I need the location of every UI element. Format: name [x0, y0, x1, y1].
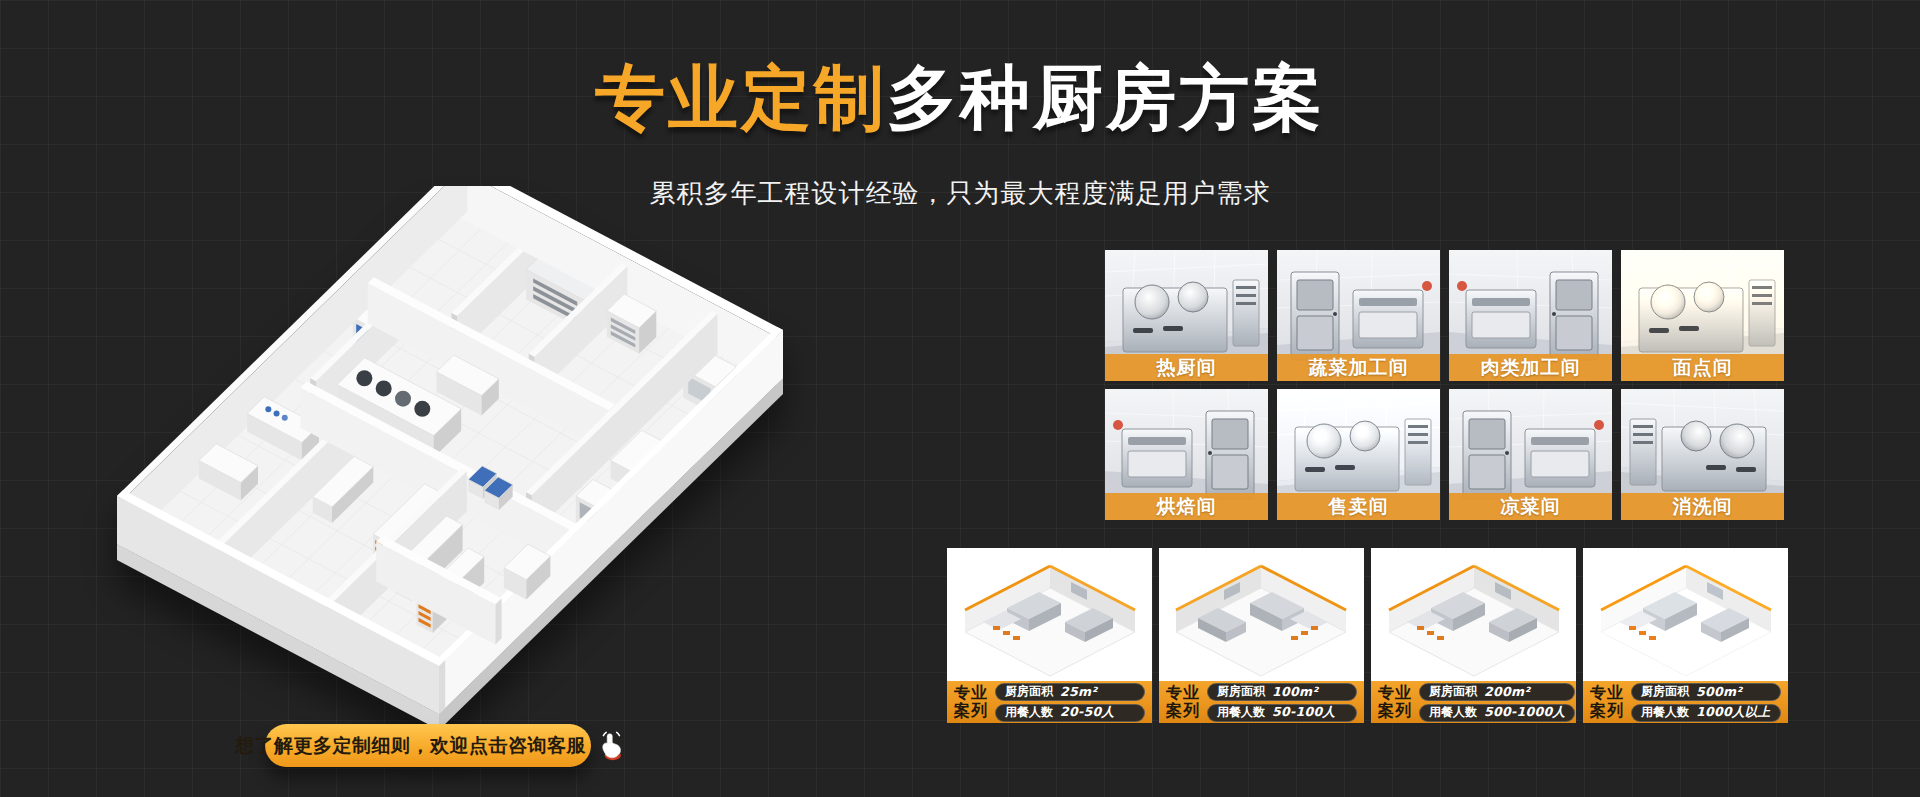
case-card-100sqm[interactable]: 专业案列 厨房面积100m² 用餐人数50-100人 — [1159, 548, 1364, 723]
room-label: 肉类加工间 — [1449, 354, 1612, 381]
room-label: 烘焙间 — [1105, 493, 1268, 520]
room-label: 面点间 — [1621, 354, 1784, 381]
hero-banner: 专业定制多种厨房方案 累积多年工程设计经验，只为最大程度满足用户需求 想了解更多… — [0, 0, 1920, 797]
consult-button-label: 想了解更多定制细则，欢迎点击咨询客服 — [235, 733, 586, 759]
page-title-highlight: 专业定制 — [595, 57, 887, 139]
case-area-pill: 厨房面积25m² — [995, 683, 1145, 701]
room-card-cold-dish[interactable]: 凉菜间 — [1449, 389, 1612, 520]
case-photo — [1371, 548, 1576, 681]
room-card-pastry[interactable]: 面点间 — [1621, 250, 1784, 381]
case-diners-pill: 用餐人数50-100人 — [1207, 704, 1357, 722]
room-label: 消洗间 — [1621, 493, 1784, 520]
case-diners-pill: 用餐人数500-1000人 — [1419, 704, 1575, 722]
case-diners-pill: 用餐人数20-50人 — [995, 704, 1145, 722]
case-tag: 专业案列 — [1378, 684, 1412, 719]
case-card-25sqm[interactable]: 专业案列 厨房面积25m² 用餐人数20-50人 — [947, 548, 1152, 723]
kitchen-floorplan-illustration — [58, 186, 814, 746]
case-tag: 专业案列 — [954, 684, 988, 719]
case-card-200sqm[interactable]: 专业案列 厨房面积200m² 用餐人数500-1000人 — [1371, 548, 1576, 723]
room-card-selling[interactable]: 售卖间 — [1277, 389, 1440, 520]
case-area-pill: 厨房面积100m² — [1207, 683, 1357, 701]
room-card-vegetable-processing[interactable]: 蔬菜加工间 — [1277, 250, 1440, 381]
case-card-500sqm[interactable]: 专业案列 厨房面积500m² 用餐人数1000人以上 — [1583, 548, 1788, 723]
case-tag: 专业案列 — [1166, 684, 1200, 719]
case-area-pill: 厨房面积200m² — [1419, 683, 1575, 701]
consult-button[interactable]: 想了解更多定制细则，欢迎点击咨询客服 — [265, 724, 591, 767]
case-diners-pill: 用餐人数1000人以上 — [1631, 704, 1781, 722]
room-label: 售卖间 — [1277, 493, 1440, 520]
case-tag: 专业案列 — [1590, 684, 1624, 719]
page-title-rest: 多种厨房方案 — [887, 57, 1325, 139]
room-card-baking[interactable]: 烘焙间 — [1105, 389, 1268, 520]
room-card-dishwashing[interactable]: 消洗间 — [1621, 389, 1784, 520]
room-card-meat-processing[interactable]: 肉类加工间 — [1449, 250, 1612, 381]
hand-click-icon — [593, 729, 627, 763]
room-card-hot-kitchen[interactable]: 热厨间 — [1105, 250, 1268, 381]
case-info-bar: 专业案列 厨房面积200m² 用餐人数500-1000人 — [1371, 681, 1576, 723]
room-label: 蔬菜加工间 — [1277, 354, 1440, 381]
case-photo — [1159, 548, 1364, 681]
case-photo — [1583, 548, 1788, 681]
room-label: 凉菜间 — [1449, 493, 1612, 520]
case-gallery: 专业案列 厨房面积25m² 用餐人数20-50人 专业案列 厨房面积100m² … — [947, 548, 1788, 723]
case-info-bar: 专业案列 厨房面积25m² 用餐人数20-50人 — [947, 681, 1152, 723]
case-area-pill: 厨房面积500m² — [1631, 683, 1781, 701]
floorplan-3d-render — [58, 186, 814, 746]
case-photo — [947, 548, 1152, 681]
room-gallery: 热厨间 蔬菜加工间 肉类加工间 面点间 烘焙间 售卖间 凉菜间 消洗间 — [1105, 250, 1784, 520]
room-label: 热厨间 — [1105, 354, 1268, 381]
page-title: 专业定制多种厨房方案 — [0, 52, 1920, 146]
case-info-bar: 专业案列 厨房面积100m² 用餐人数50-100人 — [1159, 681, 1364, 723]
case-info-bar: 专业案列 厨房面积500m² 用餐人数1000人以上 — [1583, 681, 1788, 723]
